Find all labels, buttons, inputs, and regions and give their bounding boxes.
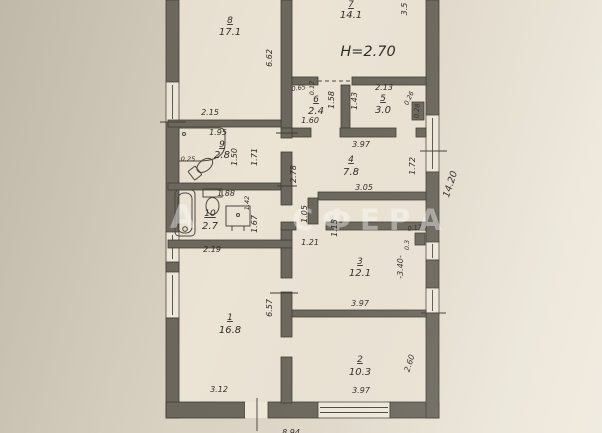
dim-3-97-room4: 3.97 bbox=[352, 140, 371, 149]
dim-1-60: 1.60 bbox=[301, 116, 319, 125]
dim-6-62: 6.62 bbox=[265, 49, 274, 67]
dim-2-19: 2.19 bbox=[203, 245, 221, 254]
room7-area: 14.1 bbox=[340, 10, 362, 21]
dim-8-94: 8.94 bbox=[282, 428, 300, 433]
room2-area: 10.3 bbox=[349, 367, 371, 378]
room4-number: 4 bbox=[348, 155, 354, 165]
dim-1-88: 1.88 bbox=[217, 189, 235, 198]
dim-1-72: 1.72 bbox=[408, 157, 417, 175]
dim-0-28: 0.28 bbox=[412, 103, 421, 118]
dim-3-40: -3.40- bbox=[396, 255, 405, 279]
dim-3-5: 3.5 bbox=[400, 3, 409, 16]
room6-number: 6 bbox=[313, 95, 319, 105]
room5-number: 5 bbox=[380, 94, 386, 104]
watermark-left: А bbox=[170, 198, 195, 236]
room3-area: 12.1 bbox=[349, 268, 371, 279]
window-room2 bbox=[318, 402, 390, 418]
room4-area: 7.8 bbox=[343, 167, 359, 178]
room1-number: 1 bbox=[227, 313, 233, 323]
dim-1-43: 1.43 bbox=[350, 92, 359, 110]
dim-3-97-room2: 3.97 bbox=[352, 386, 371, 395]
dim-3-12: 3.12 bbox=[210, 385, 228, 394]
dim-1-67: 1.67 bbox=[250, 214, 259, 233]
dim-1-50: 1.50 bbox=[230, 148, 239, 166]
room10-area: 2.7 bbox=[202, 221, 219, 232]
dim-2-13: 2.13 bbox=[375, 83, 393, 92]
room2-number: 2 bbox=[357, 355, 363, 365]
room5-area: 3.0 bbox=[375, 105, 391, 116]
dim-1-95: 1.95 bbox=[209, 128, 227, 137]
floor-plan-photo: А СФЕРА 8 17.1 7 14.1 6 2.4 5 3.0 9 2.8 … bbox=[0, 0, 602, 433]
room8-area: 17.1 bbox=[219, 27, 241, 38]
dim-1-21: 1.21 bbox=[301, 238, 319, 247]
dim-2-78: 2.78 bbox=[289, 165, 298, 183]
dim-1-58: 1.58 bbox=[327, 91, 336, 109]
dim-1-71: 1.71 bbox=[250, 148, 259, 166]
room10-number: 10 bbox=[204, 209, 216, 219]
dim-2-15: 2.15 bbox=[201, 108, 219, 117]
dim-0-25: 0.25 bbox=[181, 155, 195, 163]
watermark-right: СФЕРА bbox=[292, 203, 451, 237]
dim-6-57: 6.57 bbox=[265, 298, 274, 317]
dim-1-05: 1.05 bbox=[300, 205, 309, 223]
ceiling-height-label: H=2.70 bbox=[340, 44, 395, 60]
dim-3-05: 3.05 bbox=[355, 183, 373, 192]
dim-3-97-room3: 3.97 bbox=[351, 299, 370, 308]
room1-area: 16.8 bbox=[219, 325, 241, 336]
dim-1-13: 1.13 bbox=[330, 219, 339, 237]
room9-number: 9 bbox=[219, 140, 225, 150]
room3-number: 3 bbox=[357, 257, 363, 267]
room8-number: 8 bbox=[227, 16, 233, 26]
floor-plan-drawing: А СФЕРА 8 17.1 7 14.1 6 2.4 5 3.0 9 2.8 … bbox=[0, 0, 602, 433]
dim-0-17-top: 0.17 bbox=[308, 80, 316, 95]
dim-0-3: 0.3 bbox=[403, 240, 411, 250]
dim-14-20: 14.20 bbox=[441, 170, 460, 199]
room9-area: 2.8 bbox=[214, 150, 230, 161]
dim-1-42: 1.42 bbox=[243, 196, 251, 210]
room7-number: 7 bbox=[348, 0, 354, 10]
door-gap-bottom bbox=[245, 402, 268, 418]
